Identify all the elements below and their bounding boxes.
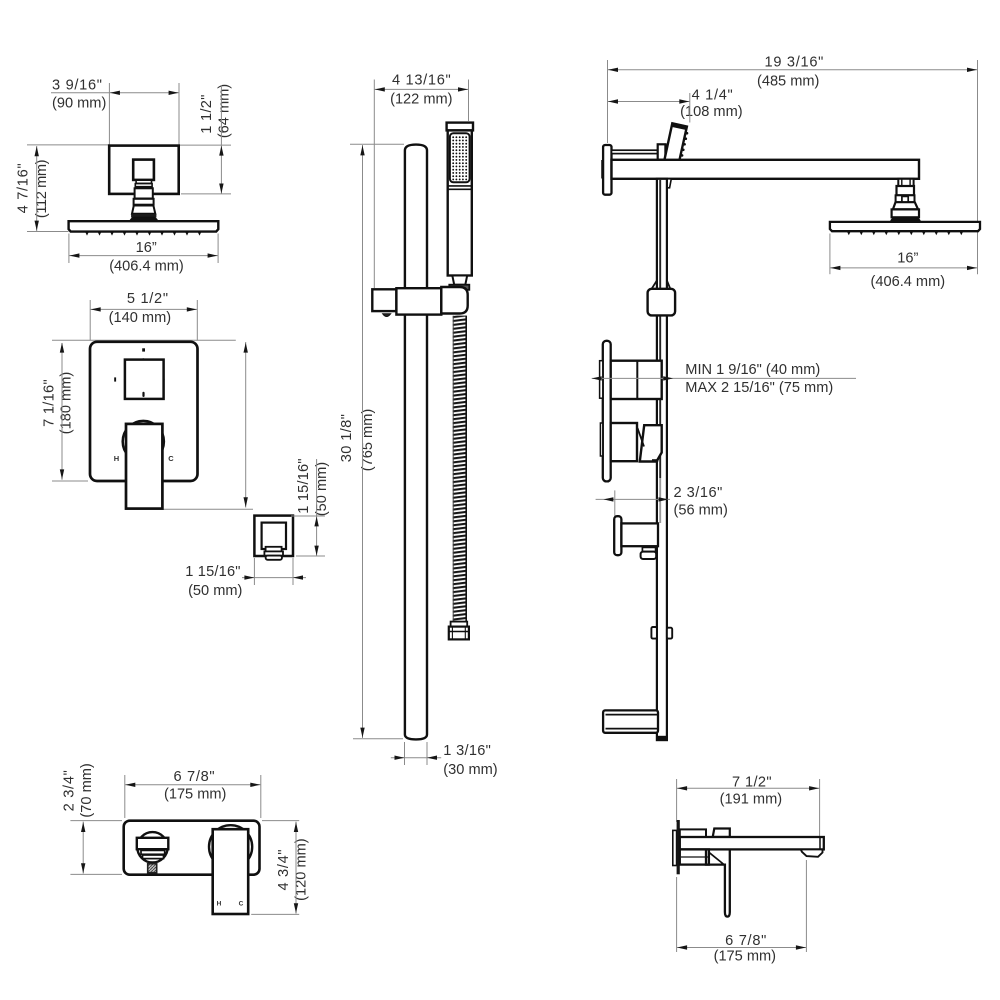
- svg-text:H: H: [217, 901, 222, 908]
- svg-text:(140 mm): (140 mm): [109, 310, 171, 326]
- svg-text:(50 mm): (50 mm): [188, 583, 242, 599]
- svg-text:1 15/16": 1 15/16": [185, 564, 240, 580]
- svg-text:(64 mm): (64 mm): [217, 84, 233, 138]
- svg-text:C: C: [239, 901, 244, 908]
- svg-text:(406.4 mm): (406.4 mm): [109, 259, 184, 275]
- svg-text:4 3/4": 4 3/4": [276, 849, 292, 891]
- svg-text:MIN 1 9/16" (40 mm): MIN 1 9/16" (40 mm): [685, 362, 820, 378]
- svg-text:30 1/8": 30 1/8": [339, 414, 355, 463]
- svg-text:16”: 16”: [897, 251, 918, 267]
- svg-text:C: C: [168, 454, 174, 463]
- svg-text:1 1/2": 1 1/2": [199, 94, 215, 133]
- svg-text:MAX 2 15/16" (75 mm): MAX 2 15/16" (75 mm): [685, 380, 833, 396]
- svg-text:2 3/4": 2 3/4": [62, 769, 78, 811]
- svg-text:H: H: [114, 454, 119, 463]
- svg-text:4 7/16": 4 7/16": [16, 163, 32, 214]
- svg-text:16”: 16”: [136, 240, 157, 256]
- svg-text:(56 mm): (56 mm): [674, 503, 728, 519]
- svg-text:5 1/2": 5 1/2": [127, 291, 169, 307]
- svg-text:7 1/16": 7 1/16": [41, 379, 57, 427]
- svg-text:1 3/16": 1 3/16": [443, 743, 491, 759]
- svg-text:(191 mm): (191 mm): [720, 792, 782, 808]
- svg-text:(90 mm): (90 mm): [52, 96, 106, 112]
- svg-text:4 13/16": 4 13/16": [392, 73, 451, 89]
- svg-text:(406.4 mm): (406.4 mm): [870, 274, 945, 290]
- svg-text:4 1/4": 4 1/4": [692, 88, 734, 104]
- svg-text:(180 mm): (180 mm): [58, 372, 74, 434]
- svg-text:(485 mm): (485 mm): [757, 74, 819, 90]
- svg-text:(30 mm): (30 mm): [443, 762, 497, 778]
- svg-text:3 9/16": 3 9/16": [52, 78, 103, 94]
- svg-text:(175 mm): (175 mm): [164, 787, 226, 803]
- svg-text:(175 mm): (175 mm): [714, 949, 776, 965]
- svg-text:2 3/16": 2 3/16": [674, 485, 723, 501]
- svg-text:1 15/16": 1 15/16": [296, 458, 312, 513]
- svg-text:19 3/16": 19 3/16": [765, 55, 824, 71]
- svg-text:6 7/8": 6 7/8": [725, 933, 767, 949]
- svg-text:6 7/8": 6 7/8": [173, 769, 215, 785]
- svg-text:(70 mm): (70 mm): [79, 763, 95, 817]
- svg-text:(122 mm): (122 mm): [390, 92, 452, 108]
